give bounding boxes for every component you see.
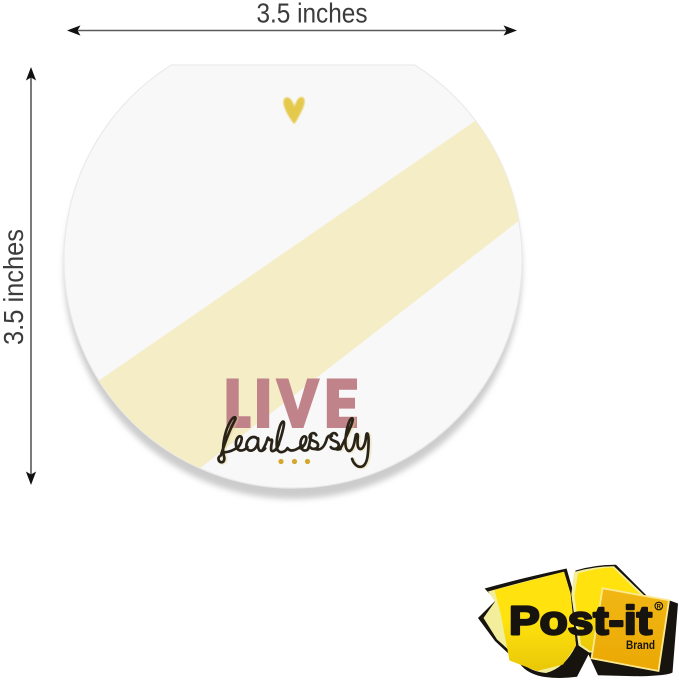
svg-text:3.5 inches: 3.5 inches <box>0 229 29 345</box>
svg-text:Brand: Brand <box>626 640 655 652</box>
svg-text:3.5 inches: 3.5 inches <box>257 0 368 29</box>
svg-text:Post-it: Post-it <box>509 599 652 643</box>
svg-text:R: R <box>657 604 662 610</box>
